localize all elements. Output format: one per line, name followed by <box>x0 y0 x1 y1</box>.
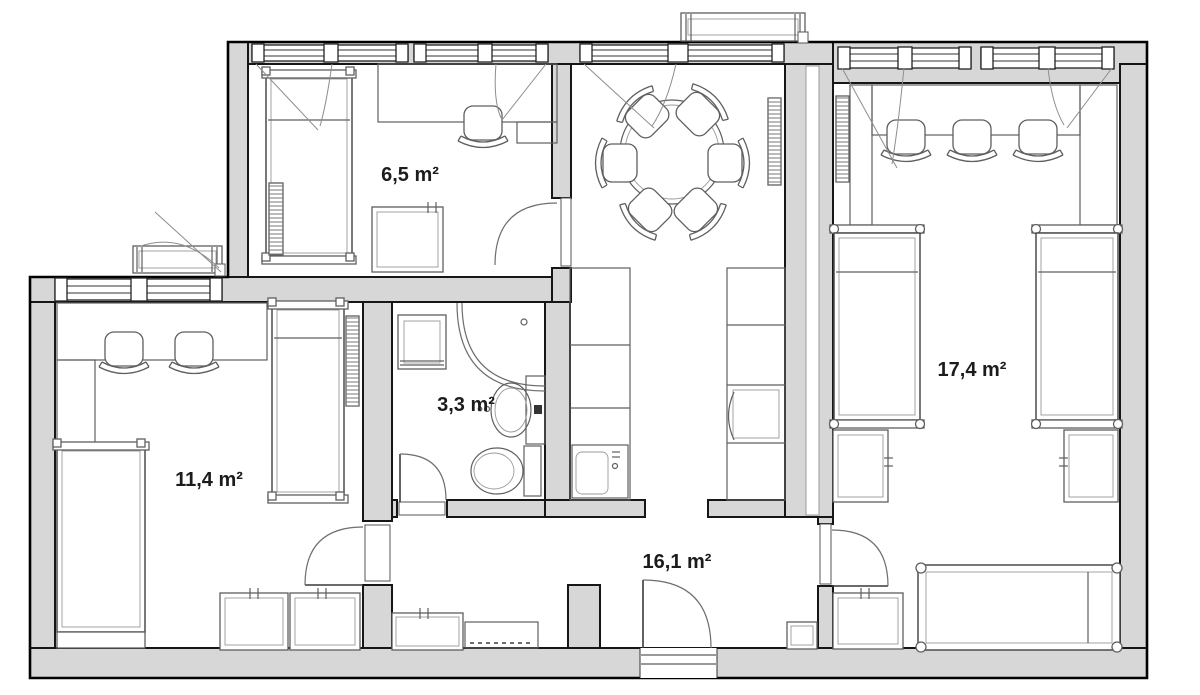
radiator <box>269 183 283 255</box>
faucet <box>534 405 542 414</box>
furniture-hallway <box>392 608 817 650</box>
dining-chair <box>668 79 733 144</box>
balcony-grate-left <box>133 212 225 276</box>
dining-chair <box>596 138 638 188</box>
floor-plan-page: 6,5 m² 3,3 m² 11,4 m² 16,1 m² 17,4 m² <box>0 0 1200 695</box>
dining-chair <box>615 180 680 245</box>
radiator <box>836 96 849 182</box>
door-bedroom-top <box>495 198 571 266</box>
floor-plan-canvas: 6,5 m² 3,3 m² 11,4 m² 16,1 m² 17,4 m² <box>0 0 1200 695</box>
dining-chair <box>708 138 750 188</box>
wall-bedroomleft-upper <box>363 302 392 521</box>
hall-cabinet <box>392 608 463 650</box>
furniture-dining-kitchen <box>570 79 785 500</box>
kitchen-bottom-stub <box>545 500 645 517</box>
window-bedroomright-left <box>838 47 971 69</box>
wall-hall-bedroomright-top <box>818 517 833 524</box>
bath-bottom-wall-b <box>447 500 545 517</box>
door-bathroom <box>399 454 446 515</box>
wall-bedroomtop-dining-stub <box>552 268 571 302</box>
wardrobe <box>372 202 443 272</box>
kitchen-counter-left <box>570 268 630 500</box>
balcony-grate-top <box>681 13 808 43</box>
office-chair <box>881 120 931 162</box>
window-bedroomtop-right <box>414 44 548 62</box>
oven <box>729 390 780 440</box>
window-bedroomright-right <box>981 47 1114 69</box>
room-label-hall-kitchen: 16,1 m² <box>643 551 712 573</box>
wall-bedroomtop-dining-upper <box>552 64 571 198</box>
wardrobe <box>833 588 903 649</box>
room-label-bedroom-right: 17,4 m² <box>938 359 1007 381</box>
corner-shower <box>457 303 545 391</box>
kitchen-sink <box>572 445 628 498</box>
shoe-cabinet <box>787 622 817 649</box>
wall-bedroomleft-lower <box>363 585 392 648</box>
wall-hall-bedroomright-bottom <box>818 586 833 648</box>
wall-bath-kitchen <box>545 302 570 517</box>
door-bedroom-left <box>305 525 390 585</box>
window-bedroomtop-left <box>252 44 408 62</box>
office-chair <box>169 332 219 374</box>
duct-shaft <box>806 66 819 515</box>
desk <box>57 303 267 445</box>
day-bed <box>916 563 1122 652</box>
bed <box>53 439 149 648</box>
window-bedroomleft <box>55 278 222 301</box>
room-label-bedroom-left: 11,4 m² <box>175 469 243 491</box>
entrance-door <box>640 580 717 678</box>
radiator <box>346 316 359 406</box>
radiator <box>768 98 781 185</box>
bath-bottom-wall-a <box>392 500 397 517</box>
wardrobe <box>1059 430 1118 502</box>
bottom-exterior-wall <box>30 648 1147 678</box>
bed <box>830 225 925 429</box>
dining-chair <box>612 81 677 146</box>
room-label-bedroom-top: 6,5 m² <box>381 164 439 186</box>
room-label-bathroom: 3,3 m² <box>437 394 495 416</box>
hall-pillar <box>568 585 600 648</box>
office-chair <box>99 332 149 374</box>
office-chair <box>947 120 997 162</box>
dining-chair <box>666 180 731 245</box>
wardrobe <box>290 588 360 650</box>
washing-machine <box>398 315 446 369</box>
wardrobe <box>220 588 288 650</box>
upper-block-left-wall <box>228 42 248 277</box>
office-chair <box>1013 120 1063 162</box>
left-exterior-wall <box>30 277 55 648</box>
hall-bench <box>465 622 538 648</box>
wardrobe <box>833 430 893 502</box>
right-exterior-wall <box>1120 64 1147 678</box>
door-bedroom-right <box>820 524 888 586</box>
office-chair <box>458 106 508 148</box>
kitchen-counter-right <box>727 268 785 500</box>
bed <box>268 298 348 503</box>
toilet <box>471 446 541 496</box>
window-dining <box>580 44 784 62</box>
bed <box>1032 225 1123 429</box>
